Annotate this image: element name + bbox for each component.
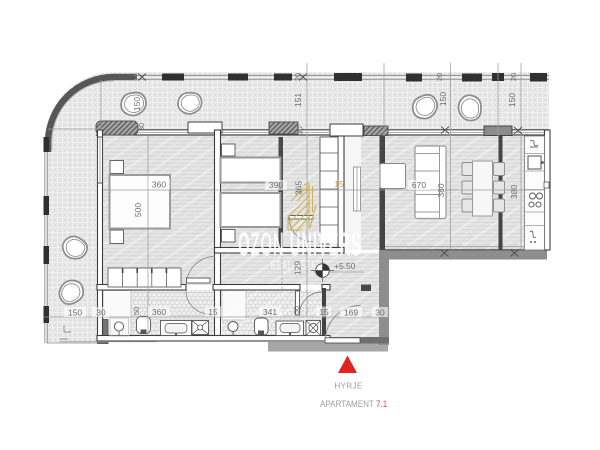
- svg-text:APARTAMENT 7.1: APARTAMENT 7.1: [320, 399, 387, 409]
- svg-text:150: 150: [132, 97, 142, 111]
- svg-text:500: 500: [133, 203, 143, 217]
- svg-text:15: 15: [319, 307, 329, 317]
- svg-text:380: 380: [509, 185, 519, 199]
- svg-text:380: 380: [436, 183, 446, 197]
- svg-text:15: 15: [334, 179, 344, 189]
- svg-text:341: 341: [263, 307, 277, 317]
- svg-text:HYRJE: HYRJE: [334, 382, 363, 391]
- svg-text:670: 670: [412, 180, 426, 190]
- svg-text:150: 150: [438, 92, 448, 106]
- svg-text:30: 30: [96, 308, 106, 318]
- svg-text:20: 20: [435, 73, 444, 81]
- svg-text:30: 30: [375, 308, 385, 318]
- svg-text:360: 360: [152, 307, 166, 317]
- svg-text:129: 129: [293, 261, 303, 275]
- svg-text:360: 360: [152, 180, 166, 190]
- svg-text:30: 30: [137, 123, 146, 131]
- svg-text:30: 30: [296, 126, 305, 134]
- svg-text:169: 169: [344, 308, 358, 318]
- svg-text:365: 365: [294, 181, 304, 195]
- svg-text:20: 20: [293, 73, 302, 81]
- svg-text:390: 390: [269, 180, 283, 190]
- svg-text:20: 20: [509, 73, 518, 81]
- svg-text:151: 151: [293, 93, 303, 107]
- svg-text:+5.50: +5.50: [334, 261, 356, 271]
- svg-text:50: 50: [132, 307, 141, 315]
- svg-text:150: 150: [507, 93, 517, 107]
- svg-text:OZON UNIVERS: OZON UNIVERS: [238, 227, 362, 263]
- svg-text:150: 150: [68, 308, 82, 318]
- svg-text:50: 50: [292, 306, 301, 314]
- svg-text:15: 15: [208, 307, 218, 317]
